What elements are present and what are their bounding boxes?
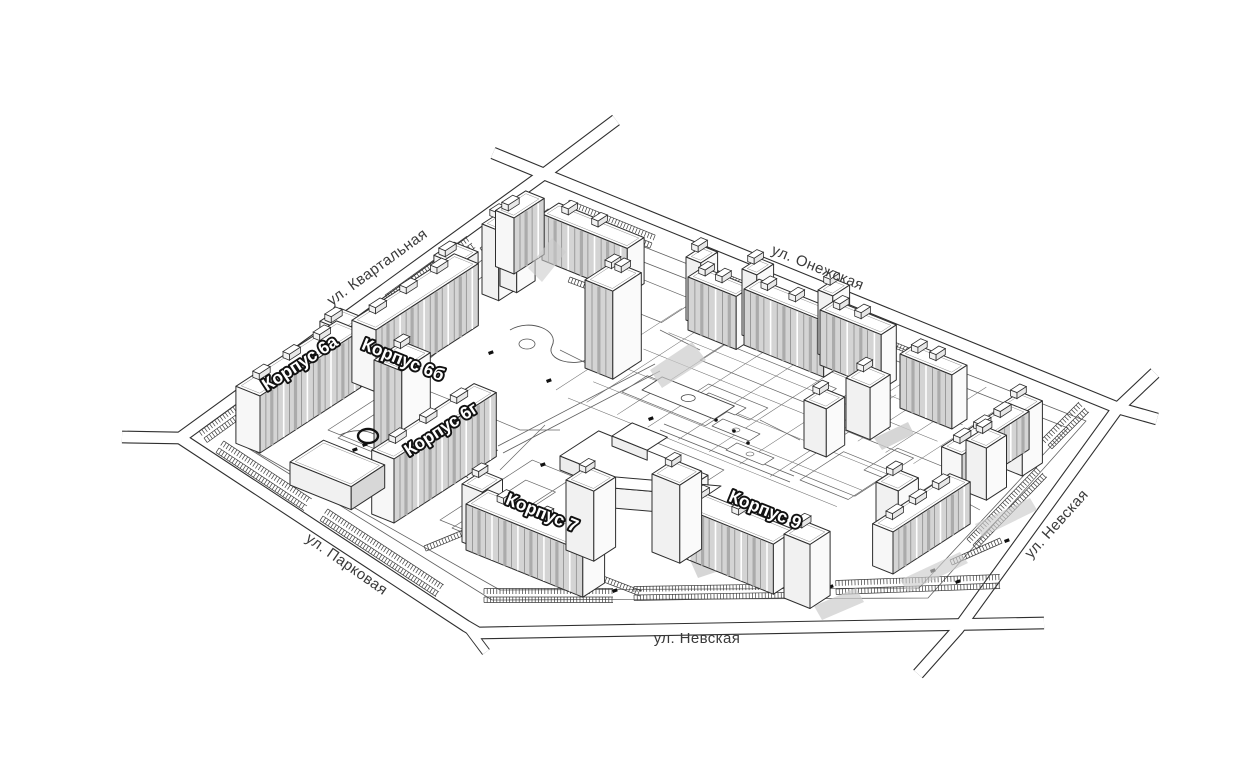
svg-text:ул. Невская: ул. Невская bbox=[654, 630, 741, 647]
